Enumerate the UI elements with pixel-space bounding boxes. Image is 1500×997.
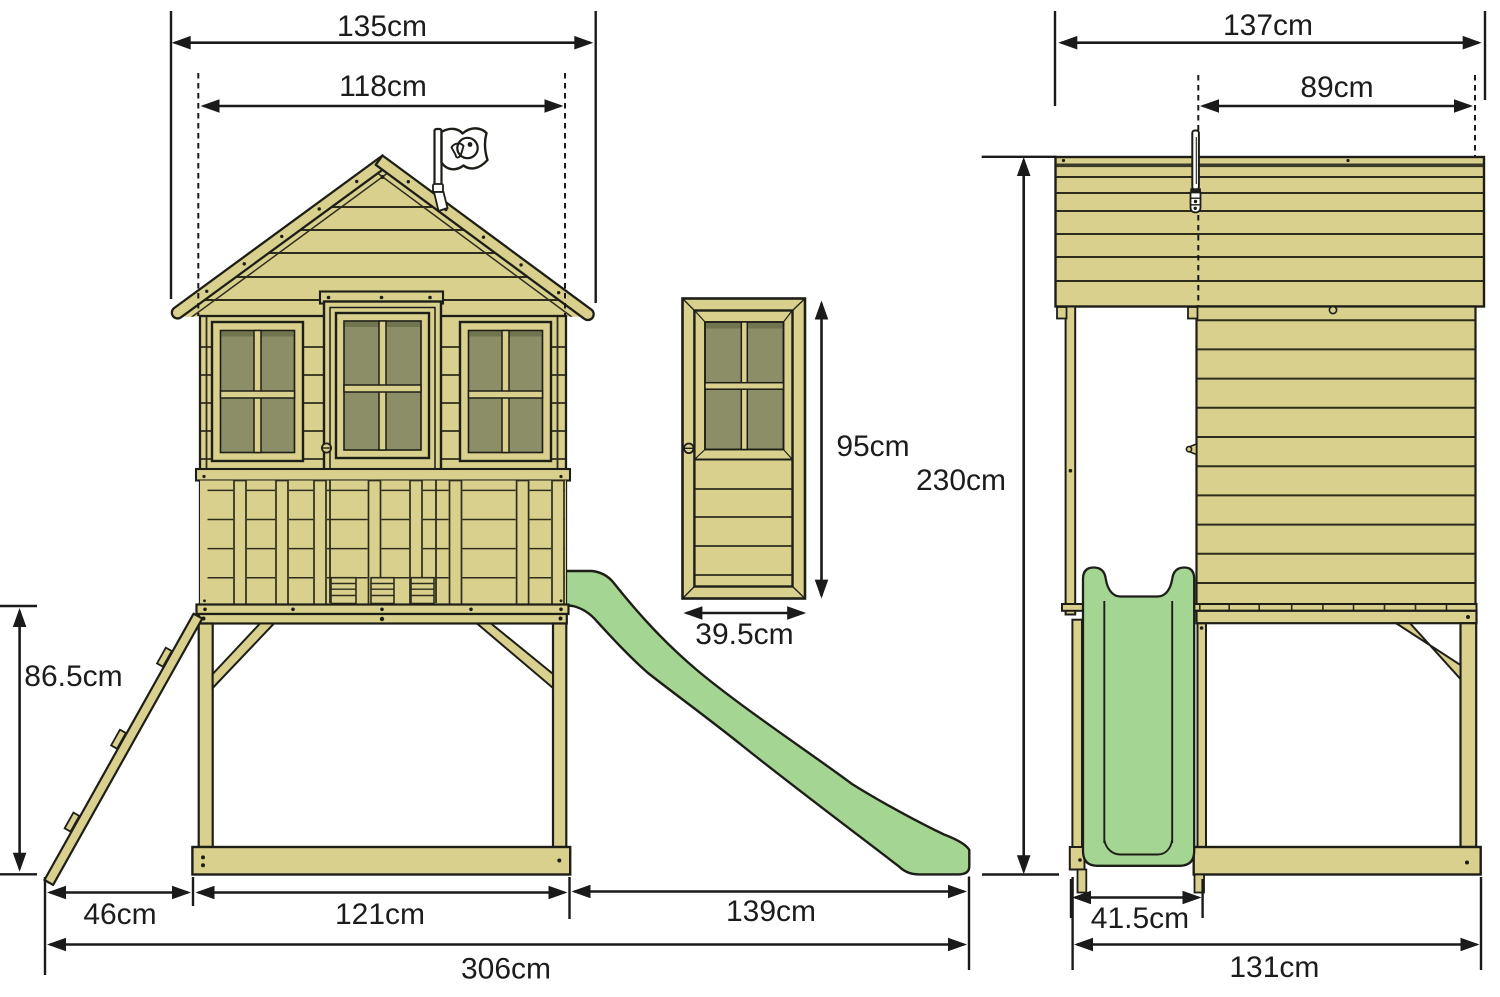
svg-text:95cm: 95cm — [836, 430, 909, 463]
svg-text:131cm: 131cm — [1229, 951, 1319, 984]
svg-text:139cm: 139cm — [726, 895, 816, 928]
svg-text:39.5cm: 39.5cm — [695, 618, 793, 651]
svg-text:230cm: 230cm — [916, 464, 1006, 497]
svg-text:135cm: 135cm — [337, 10, 427, 43]
svg-text:89cm: 89cm — [1300, 71, 1373, 104]
svg-text:41.5cm: 41.5cm — [1091, 902, 1189, 935]
svg-text:46cm: 46cm — [83, 898, 156, 931]
svg-text:118cm: 118cm — [339, 70, 427, 103]
svg-text:86.5cm: 86.5cm — [24, 660, 122, 693]
svg-text:306cm: 306cm — [461, 953, 551, 986]
svg-text:137cm: 137cm — [1223, 9, 1313, 42]
svg-text:121cm: 121cm — [335, 898, 425, 931]
